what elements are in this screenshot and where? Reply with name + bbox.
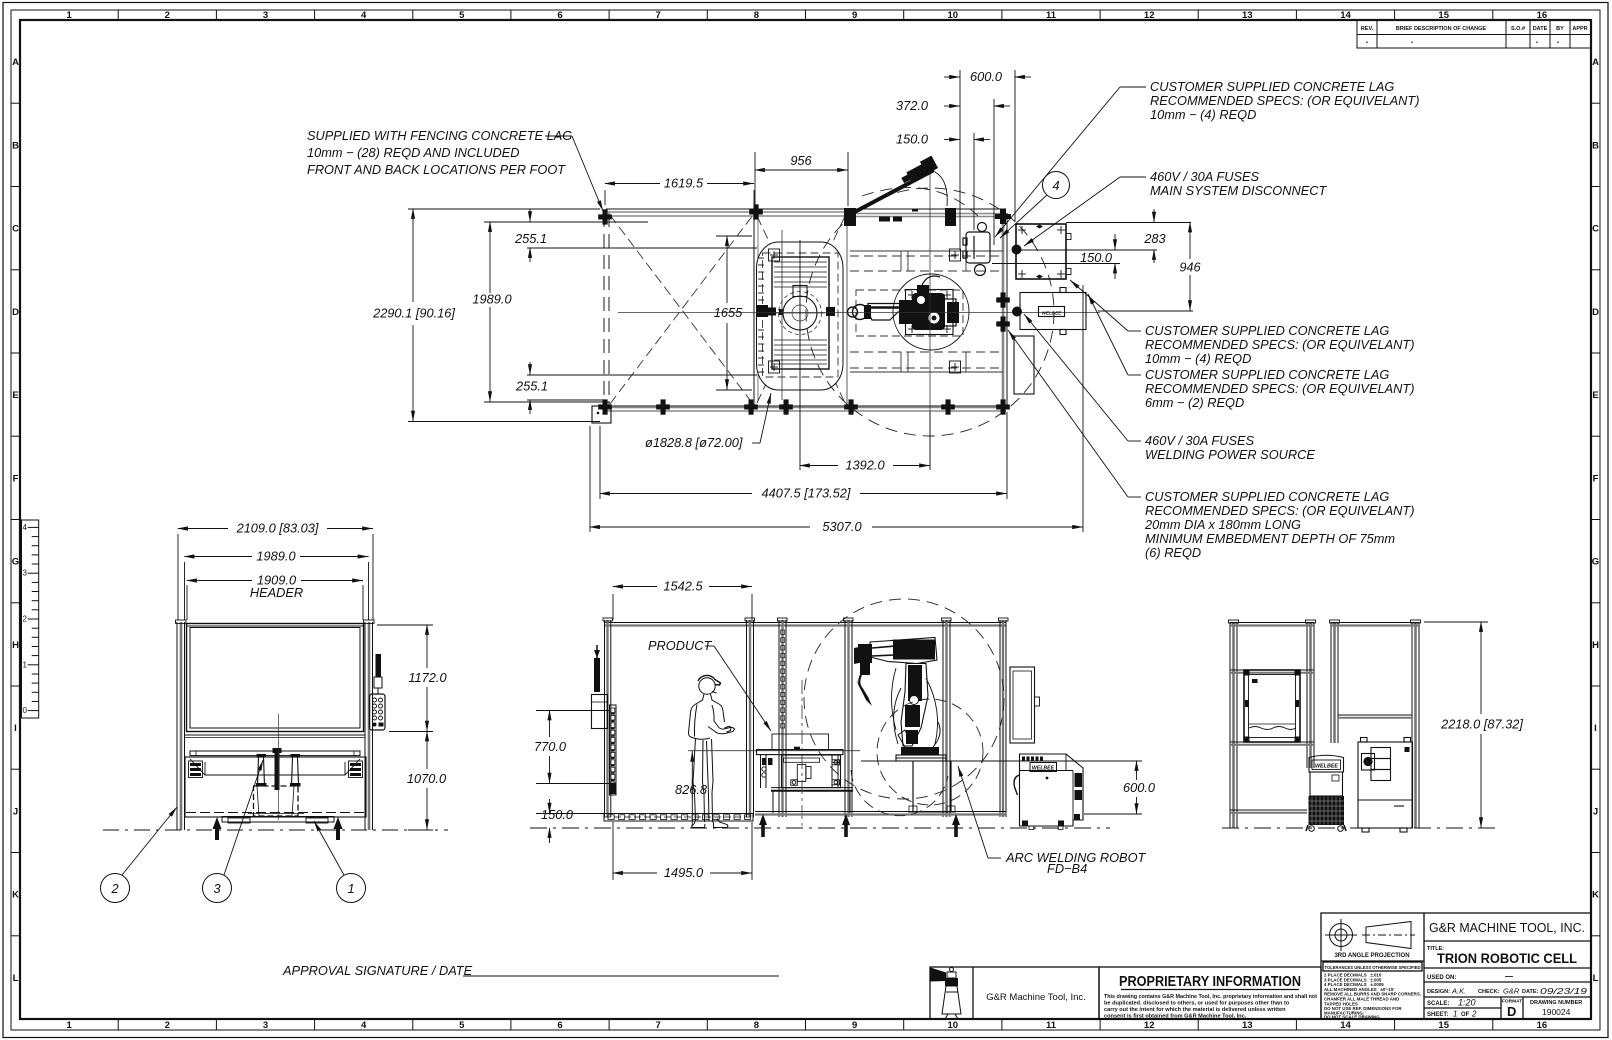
svg-text:B: B xyxy=(12,140,19,151)
svg-text:4: 4 xyxy=(361,10,367,21)
svg-text:4: 4 xyxy=(1052,178,1059,193)
svg-text:C: C xyxy=(1592,224,1599,235)
svg-text:2290.1 [90.16]: 2290.1 [90.16] xyxy=(372,306,455,321)
svg-text:DATE:: DATE: xyxy=(1522,989,1539,995)
svg-text:J: J xyxy=(1593,806,1598,817)
svg-text:APPR: APPR xyxy=(1572,26,1587,32)
svg-text:2218.0 [87.32]: 2218.0 [87.32] xyxy=(1440,717,1523,732)
svg-text:6: 6 xyxy=(557,10,562,21)
svg-text:H: H xyxy=(12,640,19,651)
svg-text:1542.5: 1542.5 xyxy=(663,579,703,594)
svg-text:A: A xyxy=(12,57,19,68)
svg-text:G&R MACHINE TOOL, INC.: G&R MACHINE TOOL, INC. xyxy=(1429,921,1585,935)
svg-text:•: • xyxy=(1536,40,1538,46)
svg-text:150.0: 150.0 xyxy=(896,132,929,147)
svg-text:1070.0: 1070.0 xyxy=(407,771,447,786)
svg-text:WELBEE: WELBEE xyxy=(1042,311,1063,316)
svg-text:A: A xyxy=(1592,57,1599,68)
svg-text:3: 3 xyxy=(263,10,268,21)
svg-text:1: 1 xyxy=(1453,1010,1457,1019)
svg-text:I: I xyxy=(1594,723,1597,734)
svg-text:SCALE:: SCALE: xyxy=(1427,1001,1449,1007)
svg-text:12: 12 xyxy=(1144,10,1155,21)
svg-text:283: 283 xyxy=(1143,231,1165,246)
svg-text:S.O.#: S.O.# xyxy=(1511,26,1525,32)
svg-text:7: 7 xyxy=(656,10,661,21)
svg-text:8: 8 xyxy=(754,1020,759,1031)
svg-text:3RD ANGLE PROJECTION: 3RD ANGLE PROJECTION xyxy=(1334,953,1409,959)
svg-text:9: 9 xyxy=(852,10,857,21)
svg-text:C: C xyxy=(12,224,19,235)
svg-text:G: G xyxy=(12,557,19,568)
svg-text:RECOMMENDED SPECS: (OR EQUI: RECOMMENDED SPECS: (OR EQUIVELANT) xyxy=(1145,381,1414,396)
svg-text:15: 15 xyxy=(1438,1020,1449,1031)
svg-text:E: E xyxy=(12,390,18,401)
svg-text:G&R: G&R xyxy=(1503,987,1520,996)
svg-text:10mm − (4) REQD: 10mm − (4) REQD xyxy=(1150,107,1256,122)
svg-text:D: D xyxy=(12,307,19,318)
svg-text:BRIEF DESCRIPTION OF CHANGE: BRIEF DESCRIPTION OF CHANGE xyxy=(1396,26,1486,32)
svg-text:CUSTOMER SUPPLIED CONCRETE: CUSTOMER SUPPLIED CONCRETE LAG xyxy=(1145,323,1389,338)
svg-text:PROPRIETARY INFORMATION: PROPRIETARY INFORMATION xyxy=(1119,973,1301,990)
svg-text:WELDING POWER SOURCE: WELDING POWER SOURCE xyxy=(1145,447,1315,462)
svg-text:15: 15 xyxy=(1438,10,1449,21)
svg-text:5307.0: 5307.0 xyxy=(822,519,862,534)
svg-text:7: 7 xyxy=(656,1020,661,1031)
svg-text:•: • xyxy=(1366,40,1368,46)
svg-text:RECOMMENDED SPECS: (OR EQUI: RECOMMENDED SPECS: (OR EQUIVELANT) xyxy=(1145,337,1414,352)
svg-text:2: 2 xyxy=(165,1020,170,1031)
svg-text:—: — xyxy=(1505,972,1513,981)
svg-text:L: L xyxy=(13,973,19,984)
svg-text:16: 16 xyxy=(1537,1020,1548,1031)
svg-text:1: 1 xyxy=(347,881,354,896)
svg-text:1: 1 xyxy=(66,1020,72,1031)
svg-text:1392.0: 1392.0 xyxy=(845,458,885,473)
svg-text:255.1: 255.1 xyxy=(514,231,547,246)
svg-text:FD−B4: FD−B4 xyxy=(1047,861,1087,876)
svg-text:3: 3 xyxy=(213,881,220,896)
svg-text:MAIN SYSTEM DISCONNECT: MAIN SYSTEM DISCONNECT xyxy=(1150,183,1328,198)
svg-text:770.0: 770.0 xyxy=(534,739,567,754)
svg-text:SHEET:: SHEET: xyxy=(1427,1012,1448,1018)
svg-text:RECOMMENDED SPECS: (OR EQUI: RECOMMENDED SPECS: (OR EQUIVELANT) xyxy=(1145,503,1414,518)
svg-text:This drawing contains G&R: This drawing contains G&R Machine Tool, … xyxy=(1104,994,1317,1000)
svg-text:1: 1 xyxy=(66,10,72,21)
svg-text:946: 946 xyxy=(1179,260,1201,275)
svg-text:2: 2 xyxy=(1471,1010,1477,1019)
svg-text:150.0: 150.0 xyxy=(541,807,574,822)
svg-text:1989.0: 1989.0 xyxy=(256,549,296,564)
svg-text:G&R Machine Tool, Inc.: G&R Machine Tool, Inc. xyxy=(986,992,1086,1003)
svg-text:460V / 30A FUSES: 460V / 30A FUSES xyxy=(1150,169,1260,184)
svg-text:09/23/19: 09/23/19 xyxy=(1540,986,1587,996)
svg-text:1655: 1655 xyxy=(714,305,743,320)
svg-text:TOLERANCES UNLESS OTHERWISE: TOLERANCES UNLESS OTHERWISE SPECIFIED xyxy=(1325,965,1422,970)
svg-text:K: K xyxy=(1592,890,1599,901)
svg-text:255.1: 255.1 xyxy=(515,379,548,394)
svg-text:FRONT AND BACK LOCATIONS P: FRONT AND BACK LOCATIONS PER FOOT xyxy=(307,162,566,177)
svg-text:6mm − (2) REQD: 6mm − (2) REQD xyxy=(1145,395,1244,410)
svg-text:4: 4 xyxy=(361,1020,367,1031)
svg-text:CHECK:: CHECK: xyxy=(1478,989,1500,995)
svg-text:•: • xyxy=(1411,40,1413,46)
svg-text:1989.0: 1989.0 xyxy=(472,292,512,307)
svg-text:DESIGN:: DESIGN: xyxy=(1427,989,1450,995)
svg-text:4: 4 xyxy=(23,523,28,532)
svg-text:372.0: 372.0 xyxy=(896,98,929,113)
svg-text:REV.: REV. xyxy=(1361,26,1374,32)
svg-text:H: H xyxy=(1592,640,1599,651)
svg-text:DRAWING NUMBER: DRAWING NUMBER xyxy=(1530,1000,1582,1006)
svg-text:0: 0 xyxy=(23,706,28,715)
svg-text:10mm − (28) REQD AND INCL: 10mm − (28) REQD AND INCLUDED xyxy=(307,145,520,160)
svg-text:OF: OF xyxy=(1461,1012,1470,1018)
svg-text:1495.0: 1495.0 xyxy=(664,865,704,880)
svg-text:14: 14 xyxy=(1340,1020,1351,1031)
svg-text:I: I xyxy=(14,723,17,734)
svg-text:F: F xyxy=(1593,473,1599,484)
svg-text:DATE: DATE xyxy=(1533,26,1548,32)
svg-text:BY: BY xyxy=(1556,26,1564,32)
svg-text:CUSTOMER SUPPLIED CONCRETE: CUSTOMER SUPPLIED CONCRETE LAG xyxy=(1145,367,1389,382)
svg-text:MINIMUM EMBEDMENT DEPTH OF: MINIMUM EMBEDMENT DEPTH OF 75mm xyxy=(1145,531,1395,546)
svg-text:5: 5 xyxy=(459,10,465,21)
svg-text:L: L xyxy=(1593,973,1599,984)
svg-text:CUSTOMER SUPPLIED CONCRETE: CUSTOMER SUPPLIED CONCRETE LAG xyxy=(1145,489,1389,504)
svg-text:13: 13 xyxy=(1242,10,1253,21)
svg-text:12: 12 xyxy=(1144,1020,1155,1031)
svg-text:CUSTOMER SUPPLIED CONCRETE: CUSTOMER SUPPLIED CONCRETE LAG xyxy=(1150,79,1394,94)
svg-text:11: 11 xyxy=(1046,1020,1057,1031)
svg-text:1619.5: 1619.5 xyxy=(664,176,704,191)
svg-text:carry out the intent for: carry out the intent for which the mater… xyxy=(1104,1007,1286,1013)
svg-text:TRION ROBOTIC CELL: TRION ROBOTIC CELL xyxy=(1437,951,1577,966)
svg-text:HEADER: HEADER xyxy=(250,585,303,600)
svg-text:K: K xyxy=(12,890,19,901)
svg-text:600.0: 600.0 xyxy=(970,69,1003,84)
svg-text:16: 16 xyxy=(1537,10,1548,21)
svg-text:600.0: 600.0 xyxy=(1123,780,1156,795)
svg-text:WELBEE: WELBEE xyxy=(1315,764,1338,770)
svg-text:10: 10 xyxy=(948,1020,959,1031)
svg-text:3: 3 xyxy=(23,569,28,578)
svg-text:190024: 190024 xyxy=(1542,1007,1571,1017)
svg-text:B: B xyxy=(1592,140,1599,151)
svg-text:5: 5 xyxy=(459,1020,465,1031)
svg-text:20mm DIA x 180mm LONG: 20mm DIA x 180mm LONG xyxy=(1144,517,1301,532)
svg-text:PRODUCT: PRODUCT xyxy=(648,638,712,653)
svg-text:SUPPLIED WITH FENCING CONCR: SUPPLIED WITH FENCING CONCRETE LAG xyxy=(307,128,572,143)
svg-text:2: 2 xyxy=(110,881,118,896)
svg-text:(6) REQD: (6) REQD xyxy=(1145,545,1201,560)
svg-text:10: 10 xyxy=(948,10,959,21)
svg-text:10mm − (4) REQD: 10mm − (4) REQD xyxy=(1145,351,1251,366)
svg-text:2109.0 [83.03]: 2109.0 [83.03] xyxy=(236,521,319,536)
svg-text:consent is first obtained: consent is first obtained from G&R Machi… xyxy=(1104,1014,1247,1020)
svg-text:D: D xyxy=(1507,1004,1516,1019)
svg-text:2: 2 xyxy=(23,615,28,624)
svg-text:13: 13 xyxy=(1242,1020,1253,1031)
svg-text:DO NOT SCALE DRAWING.: DO NOT SCALE DRAWING. xyxy=(1324,1015,1381,1020)
svg-text:956: 956 xyxy=(790,153,812,168)
svg-text:1172.0: 1172.0 xyxy=(408,670,447,685)
svg-text:9: 9 xyxy=(852,1020,857,1031)
svg-text:F: F xyxy=(13,473,19,484)
svg-text:1: 1 xyxy=(23,660,28,669)
svg-text:D: D xyxy=(1592,307,1599,318)
svg-text:USED ON:: USED ON: xyxy=(1427,975,1456,981)
svg-text:460V / 30A FUSES: 460V / 30A FUSES xyxy=(1145,433,1255,448)
svg-text:8: 8 xyxy=(754,10,759,21)
svg-text:G: G xyxy=(1592,557,1599,568)
svg-text:3: 3 xyxy=(263,1020,268,1031)
svg-text:ø1828.8 [ø72.00]: ø1828.8 [ø72.00] xyxy=(645,435,743,450)
svg-text:E: E xyxy=(1592,390,1598,401)
svg-text:APPROVAL SIGNATURE / DATE: APPROVAL SIGNATURE / DATE xyxy=(282,963,473,978)
svg-text:6: 6 xyxy=(557,1020,562,1031)
svg-text:826.8: 826.8 xyxy=(675,782,708,797)
svg-text:WELBEE: WELBEE xyxy=(1032,766,1055,772)
svg-text:1:20: 1:20 xyxy=(1458,998,1476,1008)
svg-text:A.K.: A.K. xyxy=(1451,987,1466,996)
svg-text:RECOMMENDED SPECS: (OR EQUI: RECOMMENDED SPECS: (OR EQUIVELANT) xyxy=(1150,93,1419,108)
svg-text:11: 11 xyxy=(1046,10,1057,21)
svg-text:•: • xyxy=(1557,40,1559,46)
svg-text:150.0: 150.0 xyxy=(1080,250,1113,265)
svg-text:J: J xyxy=(13,806,18,817)
svg-text:14: 14 xyxy=(1340,10,1351,21)
svg-text:4407.5 [173.52]: 4407.5 [173.52] xyxy=(762,486,851,501)
svg-text:2: 2 xyxy=(165,10,170,21)
svg-text:be duplicated. disclosed to: be duplicated. disclosed to others, or u… xyxy=(1104,1001,1290,1007)
